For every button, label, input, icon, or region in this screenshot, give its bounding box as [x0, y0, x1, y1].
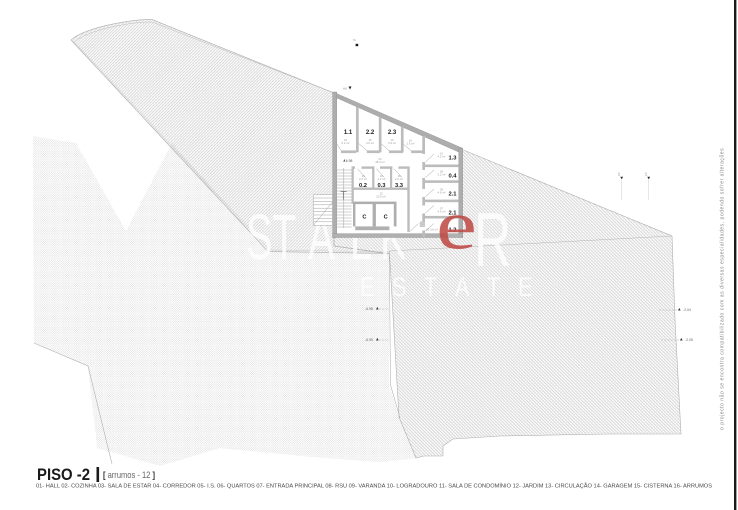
- svg-text:-6.99: -6.99: [365, 338, 373, 342]
- svg-text:EP: EP: [644, 172, 648, 176]
- svg-text:2.2 m²: 2.2 m²: [438, 173, 446, 177]
- svg-text:1.3: 1.3: [448, 156, 457, 162]
- svg-text:2.2 m²: 2.2 m²: [359, 177, 367, 181]
- svg-text:20.0 m²: 20.0 m²: [376, 195, 386, 199]
- svg-text:PISO -2: PISO -2: [37, 465, 90, 484]
- svg-text:C: C: [384, 214, 388, 220]
- svg-text:5.2 m²: 5.2 m²: [342, 141, 350, 145]
- svg-text:2.3: 2.3: [388, 130, 397, 136]
- svg-text:-6.98: -6.98: [365, 307, 373, 311]
- svg-text:S: S: [246, 203, 272, 274]
- svg-text:EP: EP: [617, 172, 621, 176]
- svg-text:T: T: [487, 273, 500, 303]
- svg-text:T: T: [424, 273, 437, 303]
- svg-text:E: E: [518, 273, 532, 303]
- svg-text:T: T: [272, 203, 296, 274]
- svg-text:-2.05: -2.05: [685, 338, 693, 342]
- svg-text:01- HALL 02- COZINHA 03- SALA: 01- HALL 02- COZINHA 03- SALA DE ESTAR 0…: [36, 483, 712, 490]
- svg-text:0.3: 0.3: [377, 183, 386, 189]
- svg-text:0.2: 0.2: [359, 183, 367, 189]
- svg-text:e: e: [436, 186, 477, 263]
- svg-text:0.4: 0.4: [448, 174, 457, 180]
- svg-text:3.3: 3.3: [395, 183, 404, 189]
- svg-text:A: A: [455, 273, 470, 303]
- svg-text:o projecto não se encontra com: o projecto não se encontra compatibiliza…: [720, 148, 726, 430]
- svg-text:AU: AU: [343, 87, 347, 91]
- svg-text:1.1: 1.1: [344, 130, 353, 136]
- svg-text:18.4 m²: 18.4 m²: [375, 160, 385, 164]
- svg-text:-6.98: -6.98: [345, 159, 353, 163]
- svg-text:2.6 m²: 2.6 m²: [407, 142, 415, 146]
- svg-text:[ arrumos - 12 ]: [ arrumos - 12 ]: [103, 470, 155, 480]
- svg-text:4.6 m²: 4.6 m²: [366, 141, 374, 145]
- svg-text:2.2 m²: 2.2 m²: [395, 177, 403, 181]
- svg-text:3.9 m²: 3.9 m²: [388, 141, 396, 145]
- svg-text:C: C: [362, 214, 366, 220]
- svg-text:2.2: 2.2: [366, 130, 375, 136]
- svg-text:4.2 m²: 4.2 m²: [438, 155, 446, 159]
- svg-text:2.2 m²: 2.2 m²: [378, 177, 386, 181]
- svg-text:-2.04: -2.04: [683, 308, 691, 312]
- svg-text:R: R: [474, 197, 511, 282]
- svg-text:E: E: [360, 273, 374, 303]
- svg-text:S: S: [392, 273, 406, 303]
